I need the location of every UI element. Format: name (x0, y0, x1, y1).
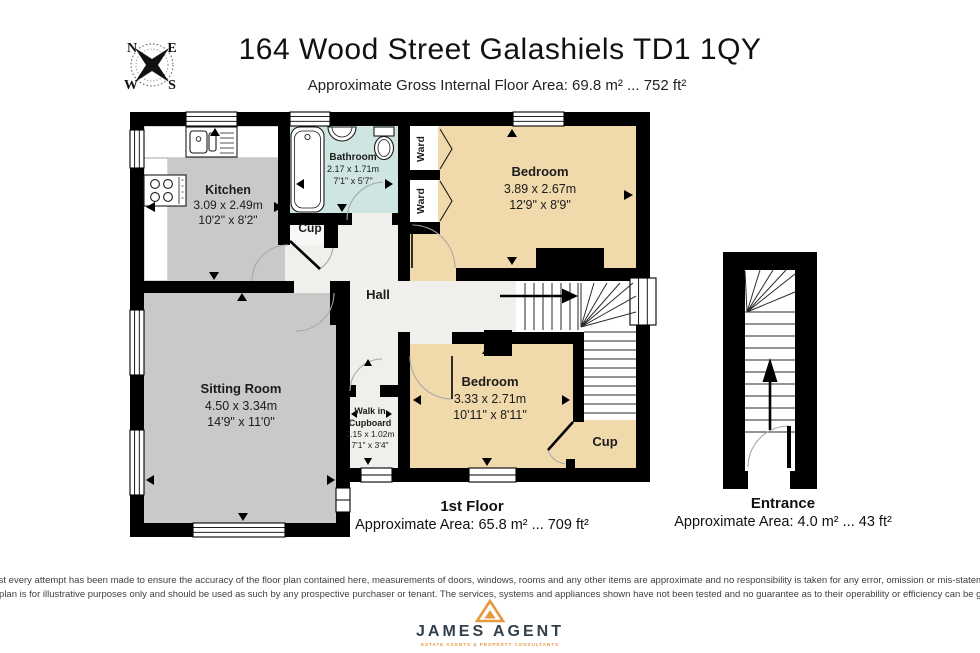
first-floor-area: Approximate Area: 65.8 m² ... 709 ft² (355, 516, 589, 535)
bedroom2-name: Bedroom (453, 374, 527, 391)
bathtub-icon (291, 127, 324, 212)
kitchen-name: Kitchen (193, 182, 262, 198)
compass-n: N (127, 41, 137, 56)
bedroom2-label: Bedroom 3.33 x 2.71m 10'11" x 8'11" (453, 374, 527, 423)
kitchen-sink-icon (186, 127, 237, 157)
floorplan-page: { "header": { "title": "164 Wood Street … (0, 0, 980, 653)
kitchen-metric: 3.09 x 2.49m (193, 198, 262, 213)
first-floor-title: 1st Floor (355, 497, 589, 516)
page-title: 164 Wood Street Galashiels TD1 1QY (239, 33, 762, 67)
entrance-block (723, 252, 817, 489)
entrance-title: Entrance (674, 494, 892, 513)
floorplan-svg: N E W S (0, 0, 980, 653)
bathroom-metric: 2.17 x 1.71m (327, 164, 379, 176)
sitting-room-name: Sitting Room (201, 381, 282, 398)
compass-w: W (124, 78, 138, 93)
bathroom-imperial: 7'1" x 5'7" (327, 176, 379, 188)
disclaimer-line-2: This plan is for illustrative purposes o… (0, 589, 980, 600)
sitting-room-imperial: 14'9" x 11'0" (201, 414, 282, 430)
bathroom-label: Bathroom 2.17 x 1.71m 7'1" x 5'7" (327, 151, 379, 187)
bathroom-name: Bathroom (327, 151, 379, 164)
ward2-label: Ward (415, 171, 427, 231)
first-floor-summary: 1st Floor Approximate Area: 65.8 m² ... … (355, 497, 589, 535)
compass-rose: N E W S (124, 41, 177, 93)
agency-logo-tagline: ESTATE AGENTS & PROPERTY CONSULTANTS (421, 642, 559, 647)
bedroom2-imperial: 10'11" x 8'11" (453, 407, 527, 423)
walkin-name-2: Cupboard (345, 418, 394, 430)
bedroom1-imperial: 12'9" x 8'9" (504, 197, 576, 213)
page-subtitle: Approximate Gross Internal Floor Area: 6… (308, 77, 687, 94)
agency-logo-name: JAMES AGENT (416, 623, 564, 641)
walkin-imperial: 7'1" x 3'4" (345, 440, 394, 451)
bedroom-cup-label: Cup (592, 434, 617, 451)
compass-e: E (167, 41, 176, 56)
bedroom1-name: Bedroom (504, 164, 576, 181)
hall-cup-label: Cup (298, 221, 321, 236)
walkin-cupboard-label: Walk in Cupboard 2.15 x 1.02m 7'1" x 3'4… (345, 406, 394, 451)
sitting-room-label: Sitting Room 4.50 x 3.34m 14'9" x 11'0" (201, 381, 282, 430)
kitchen-label: Kitchen 3.09 x 2.49m 10'2" x 8'2" (193, 182, 262, 229)
compass-s: S (168, 78, 176, 93)
ward1-label: Ward (415, 119, 427, 179)
walkin-metric: 2.15 x 1.02m (345, 429, 394, 440)
compass-star-icon (135, 48, 169, 82)
stove-icon (144, 175, 186, 206)
walkin-name-1: Walk in (345, 406, 394, 418)
disclaimer-line-1: Whilst every attempt has been made to en… (0, 575, 980, 586)
entrance-area: Approximate Area: 4.0 m² ... 43 ft² (674, 513, 892, 532)
sitting-room-metric: 4.50 x 3.34m (201, 398, 282, 414)
hall-label: Hall (366, 287, 390, 304)
bedroom1-metric: 3.89 x 2.67m (504, 181, 576, 197)
logo-triangle-icon (477, 601, 503, 621)
main-flat (130, 112, 656, 537)
bedroom1-label: Bedroom 3.89 x 2.67m 12'9" x 8'9" (504, 164, 576, 213)
bedroom2-metric: 3.33 x 2.71m (453, 391, 527, 407)
kitchen-imperial: 10'2" x 8'2" (193, 213, 262, 228)
entrance-summary: Entrance Approximate Area: 4.0 m² ... 43… (674, 494, 892, 532)
